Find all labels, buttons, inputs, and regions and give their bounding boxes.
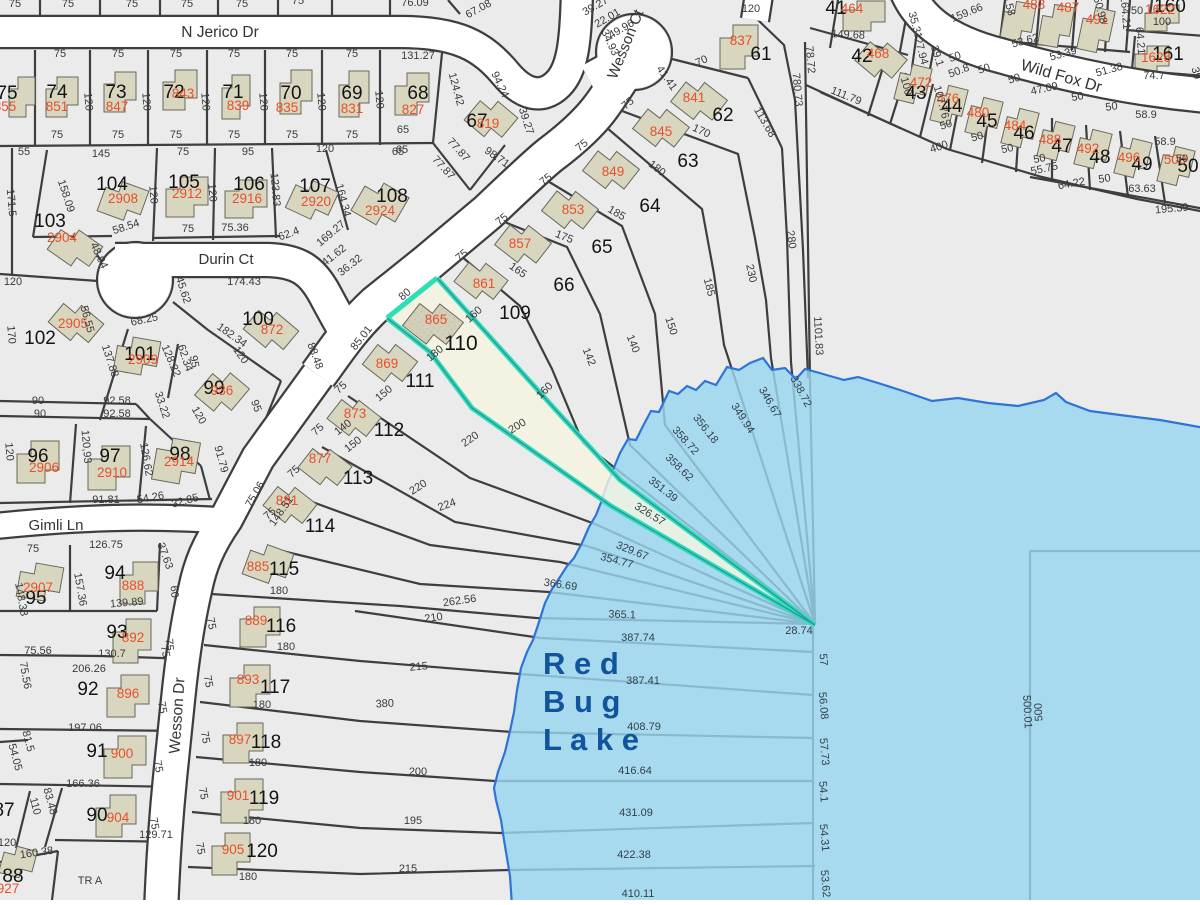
svg-text:91.81: 91.81 [92, 494, 120, 506]
svg-text:103: 103 [34, 211, 66, 232]
svg-text:B u g: B u g [543, 684, 621, 719]
svg-text:75: 75 [193, 841, 207, 855]
svg-text:195: 195 [404, 815, 422, 827]
svg-text:2908: 2908 [108, 191, 138, 206]
svg-text:75: 75 [204, 616, 218, 630]
svg-text:75.36: 75.36 [221, 222, 249, 234]
svg-text:120: 120 [314, 92, 328, 111]
svg-text:877: 877 [309, 451, 332, 466]
svg-text:120: 120 [256, 92, 270, 111]
svg-text:53.62: 53.62 [818, 870, 832, 898]
svg-text:496: 496 [1118, 150, 1141, 165]
svg-text:180: 180 [277, 641, 295, 653]
svg-text:56.08: 56.08 [816, 692, 830, 720]
svg-text:75: 75 [292, 0, 304, 7]
svg-text:64: 64 [639, 196, 661, 217]
svg-text:120: 120 [316, 143, 334, 155]
svg-text:126.75: 126.75 [89, 539, 123, 551]
svg-text:95: 95 [242, 146, 254, 158]
svg-text:431.09: 431.09 [619, 807, 653, 819]
svg-text:75: 75 [112, 129, 124, 141]
svg-text:120: 120 [0, 837, 16, 849]
svg-text:75: 75 [196, 786, 210, 800]
svg-text:387.74: 387.74 [621, 632, 655, 644]
svg-text:64.21: 64.21 [1133, 27, 1147, 55]
svg-text:180: 180 [270, 585, 288, 597]
svg-text:109: 109 [499, 303, 531, 324]
svg-text:92.58: 92.58 [103, 408, 131, 420]
svg-text:835: 835 [276, 100, 299, 115]
svg-text:50: 50 [1176, 153, 1188, 165]
svg-text:487: 487 [1057, 0, 1080, 15]
svg-text:111: 111 [406, 371, 435, 392]
svg-text:149.68: 149.68 [831, 28, 865, 42]
svg-text:853: 853 [562, 202, 585, 217]
svg-text:280: 280 [784, 230, 798, 250]
svg-text:2916: 2916 [232, 191, 262, 206]
svg-text:58.9: 58.9 [1154, 136, 1175, 148]
svg-text:75: 75 [54, 48, 66, 60]
svg-text:120: 120 [372, 90, 386, 109]
svg-text:180: 180 [253, 699, 271, 711]
svg-text:Gimli Ln: Gimli Ln [28, 517, 83, 534]
svg-text:484: 484 [1004, 118, 1027, 133]
svg-text:58.9: 58.9 [1135, 109, 1156, 121]
svg-text:120: 120 [198, 92, 212, 111]
svg-text:900: 900 [111, 746, 134, 761]
svg-text:60: 60 [167, 585, 180, 598]
svg-text:885: 885 [247, 559, 270, 574]
svg-text:116: 116 [266, 616, 296, 637]
svg-text:1622: 1622 [1145, 2, 1175, 17]
svg-text:97: 97 [99, 446, 120, 467]
svg-text:75: 75 [201, 674, 215, 688]
svg-text:75: 75 [181, 0, 193, 10]
svg-text:120: 120 [2, 442, 16, 461]
svg-text:488: 488 [1039, 132, 1062, 147]
svg-text:75: 75 [158, 644, 172, 658]
svg-text:119: 119 [249, 788, 279, 809]
svg-text:75: 75 [198, 730, 212, 744]
svg-text:827: 827 [402, 102, 425, 117]
svg-text:200: 200 [409, 766, 427, 778]
svg-text:120: 120 [742, 3, 760, 15]
svg-text:90: 90 [34, 408, 46, 420]
svg-text:480: 480 [967, 105, 990, 120]
svg-text:2906: 2906 [29, 460, 59, 475]
svg-text:145: 145 [92, 148, 110, 160]
svg-text:91: 91 [86, 741, 107, 762]
svg-text:500.01: 500.01 [1020, 695, 1034, 729]
svg-text:905: 905 [222, 842, 245, 857]
svg-text:113: 113 [343, 468, 373, 489]
svg-text:117: 117 [260, 677, 290, 698]
svg-text:492: 492 [1077, 141, 1100, 156]
svg-text:416.64: 416.64 [618, 765, 652, 777]
svg-text:936: 936 [211, 383, 234, 398]
svg-text:120: 120 [81, 92, 95, 111]
svg-text:75: 75 [228, 48, 240, 60]
svg-text:170: 170 [4, 325, 18, 344]
svg-text:90: 90 [86, 805, 107, 826]
svg-text:847: 847 [106, 99, 129, 114]
svg-text:837: 837 [730, 33, 753, 48]
svg-text:66: 66 [553, 275, 574, 296]
svg-text:114: 114 [305, 516, 336, 537]
svg-text:166.36: 166.36 [66, 778, 100, 790]
svg-text:171.5: 171.5 [4, 189, 18, 217]
svg-text:849: 849 [602, 164, 625, 179]
svg-text:50: 50 [1098, 172, 1112, 186]
svg-text:861: 861 [473, 276, 496, 291]
svg-text:872: 872 [261, 322, 284, 337]
svg-text:118: 118 [251, 732, 281, 753]
svg-text:197.06: 197.06 [68, 722, 102, 734]
svg-text:28.74: 28.74 [785, 625, 813, 637]
svg-text:893: 893 [237, 672, 260, 687]
svg-text:112: 112 [374, 420, 404, 441]
svg-text:R e d: R e d [543, 646, 619, 681]
svg-text:75.56: 75.56 [24, 645, 52, 657]
svg-text:75: 75 [286, 129, 298, 141]
svg-text:865: 865 [425, 312, 448, 327]
svg-text:57.73: 57.73 [817, 738, 831, 766]
svg-text:365.1: 365.1 [608, 609, 636, 622]
svg-text:904: 904 [107, 810, 130, 825]
svg-text:500: 500 [1033, 703, 1046, 722]
svg-text:851: 851 [46, 99, 69, 114]
svg-text:115: 115 [269, 559, 299, 580]
svg-text:2904: 2904 [47, 230, 78, 245]
svg-text:215: 215 [409, 660, 428, 674]
svg-text:74.7: 74.7 [1143, 70, 1164, 82]
svg-text:75: 75 [151, 759, 165, 773]
svg-text:380: 380 [375, 698, 394, 711]
svg-text:927: 927 [0, 881, 19, 896]
svg-text:839: 839 [227, 98, 250, 113]
svg-text:76.09: 76.09 [401, 0, 429, 9]
svg-text:63: 63 [677, 151, 698, 172]
svg-text:54.31: 54.31 [817, 824, 831, 852]
svg-text:120: 120 [139, 92, 153, 111]
svg-text:62: 62 [712, 105, 733, 126]
svg-text:120: 120 [246, 841, 278, 862]
svg-text:131.27: 131.27 [401, 50, 435, 62]
svg-text:61: 61 [750, 44, 771, 65]
svg-text:2924: 2924 [365, 203, 396, 218]
svg-text:100: 100 [1153, 16, 1171, 28]
svg-text:422.38: 422.38 [617, 849, 651, 861]
svg-text:180: 180 [239, 871, 257, 883]
svg-text:174.43: 174.43 [227, 276, 261, 288]
svg-text:50: 50 [1000, 142, 1014, 156]
svg-text:92.58: 92.58 [103, 395, 131, 407]
svg-text:855: 855 [0, 99, 16, 114]
svg-text:75: 75 [27, 543, 39, 555]
svg-text:901: 901 [227, 788, 250, 803]
svg-text:130.7: 130.7 [98, 648, 126, 660]
svg-text:2910: 2910 [97, 465, 127, 480]
svg-text:75: 75 [147, 816, 161, 830]
svg-text:L a k e: L a k e [543, 722, 639, 757]
svg-text:TR A: TR A [78, 875, 103, 887]
svg-text:65: 65 [397, 124, 409, 136]
svg-text:180: 180 [249, 757, 267, 769]
svg-text:464: 464 [841, 1, 864, 16]
svg-text:75: 75 [182, 223, 194, 235]
svg-text:896: 896 [117, 686, 140, 701]
svg-text:888: 888 [122, 578, 145, 593]
svg-text:75: 75 [236, 0, 248, 10]
svg-text:410.11: 410.11 [622, 888, 655, 900]
svg-text:75: 75 [51, 129, 63, 141]
svg-text:75: 75 [126, 0, 138, 10]
svg-text:2920: 2920 [301, 194, 331, 209]
svg-text:120: 120 [146, 185, 160, 204]
svg-text:75: 75 [170, 48, 182, 60]
svg-text:210: 210 [424, 611, 444, 625]
svg-text:75: 75 [346, 129, 358, 141]
svg-text:75: 75 [177, 146, 189, 158]
svg-text:819: 819 [477, 116, 500, 131]
svg-text:897: 897 [229, 732, 252, 747]
svg-text:110: 110 [444, 332, 477, 355]
svg-text:54.1: 54.1 [816, 781, 830, 803]
svg-text:63.63: 63.63 [1128, 183, 1156, 195]
svg-text:50: 50 [1105, 100, 1119, 114]
svg-text:92: 92 [77, 679, 98, 700]
svg-text:892: 892 [122, 630, 145, 645]
svg-text:75: 75 [286, 48, 298, 60]
svg-text:483: 483 [1023, 0, 1046, 12]
svg-text:75: 75 [228, 129, 240, 141]
svg-text:2912: 2912 [172, 186, 202, 201]
svg-text:387.41: 387.41 [626, 675, 660, 687]
svg-text:180: 180 [243, 815, 261, 827]
svg-text:889: 889 [245, 613, 268, 628]
svg-text:215: 215 [399, 863, 417, 875]
svg-text:831: 831 [341, 101, 364, 116]
svg-text:75: 75 [155, 700, 169, 714]
svg-text:55: 55 [18, 146, 30, 158]
svg-text:75: 75 [62, 0, 74, 10]
svg-text:869: 869 [376, 356, 399, 371]
svg-text:1101.83: 1101.83 [811, 316, 825, 356]
svg-text:468: 468 [867, 46, 890, 61]
svg-text:2909: 2909 [128, 352, 158, 367]
svg-text:57: 57 [816, 653, 829, 666]
svg-text:2914: 2914 [164, 454, 195, 469]
svg-text:843: 843 [172, 86, 195, 101]
svg-text:50: 50 [1070, 90, 1084, 104]
svg-text:841: 841 [683, 90, 706, 105]
svg-text:N Jerico Dr: N Jerico Dr [181, 24, 259, 41]
svg-text:206.26: 206.26 [72, 663, 106, 675]
svg-text:87: 87 [0, 800, 15, 821]
svg-text:75: 75 [112, 48, 124, 60]
svg-text:50: 50 [1131, 5, 1143, 17]
svg-text:68: 68 [407, 83, 428, 104]
svg-text:120: 120 [205, 183, 219, 202]
svg-text:50: 50 [1032, 152, 1046, 166]
svg-text:75: 75 [346, 48, 358, 60]
svg-text:65: 65 [591, 237, 612, 258]
svg-text:102: 102 [24, 328, 56, 349]
svg-text:120: 120 [4, 276, 22, 288]
svg-text:65: 65 [396, 144, 408, 156]
svg-text:75: 75 [170, 129, 182, 141]
svg-text:845: 845 [650, 124, 673, 139]
svg-text:90: 90 [32, 395, 44, 407]
svg-text:2907: 2907 [23, 580, 53, 595]
svg-text:129.71: 129.71 [139, 829, 173, 841]
svg-text:Durin Ct: Durin Ct [198, 251, 254, 268]
svg-text:95: 95 [187, 354, 201, 368]
svg-text:857: 857 [509, 236, 532, 251]
svg-text:75: 75 [9, 0, 21, 10]
svg-text:78.72: 78.72 [803, 46, 817, 74]
